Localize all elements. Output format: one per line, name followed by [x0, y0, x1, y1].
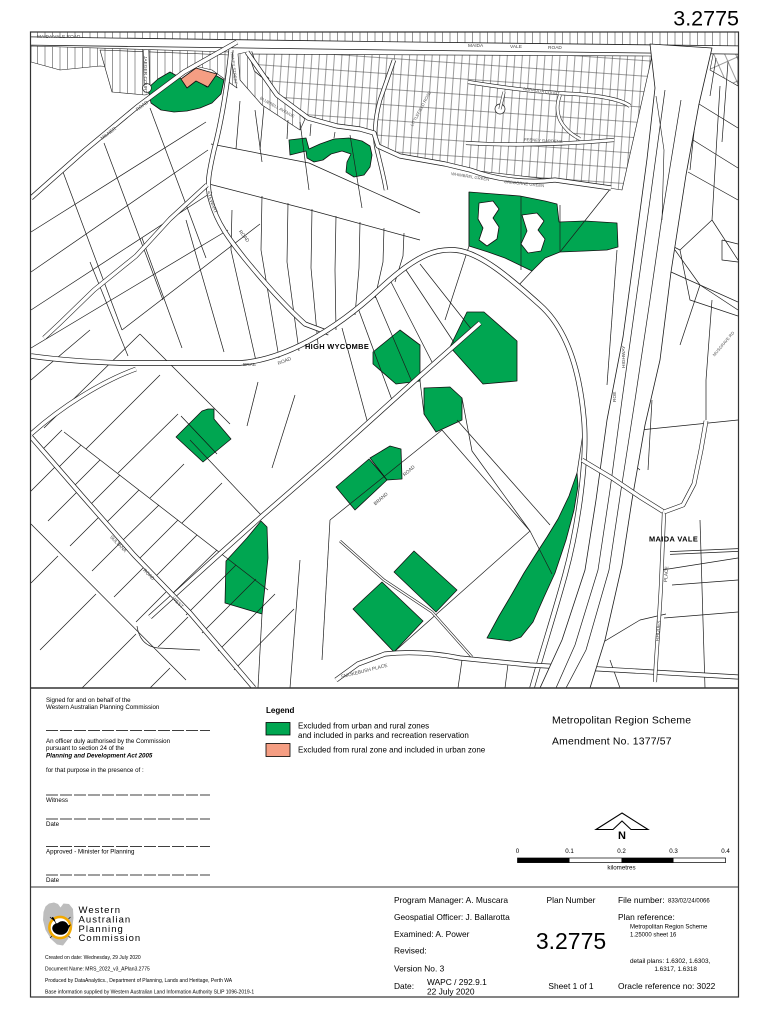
svg-text:Approved - Minister for Planni: Approved - Minister for Planning: [46, 849, 135, 856]
svg-text:Date: Date: [46, 821, 60, 828]
svg-text:WAPC / 292.9.1: WAPC / 292.9.1: [427, 977, 487, 987]
svg-text:HIGH WYCOMBE: HIGH WYCOMBE: [305, 342, 369, 351]
svg-text:for that purpose in the presen: for that purpose in the presence of :: [46, 767, 144, 774]
svg-text:ROAD: ROAD: [548, 45, 562, 51]
svg-text:Commission: Commission: [79, 933, 142, 944]
svg-text:MAIDA VALE ROAD: MAIDA VALE ROAD: [37, 34, 81, 40]
svg-text:22 July 2020: 22 July 2020: [427, 987, 475, 997]
svg-text:Legend: Legend: [266, 706, 295, 715]
svg-text:MAIDA: MAIDA: [468, 43, 484, 49]
svg-text:Planning and Development Act 2: Planning and Development Act 2005: [46, 753, 153, 760]
svg-text:pursuant to section 24 of the: pursuant to section 24 of the: [46, 745, 125, 752]
svg-text:Metropolitan Region Scheme: Metropolitan Region Scheme: [552, 716, 691, 727]
svg-text:Amendment No. 1377/57: Amendment No. 1377/57: [552, 737, 672, 748]
svg-text:and included in parks and recr: and included in parks and recreation res…: [298, 731, 469, 740]
svg-text:Revised:: Revised:: [394, 946, 427, 956]
svg-text:Base information supplied by W: Base information supplied by Western Aus…: [45, 990, 254, 996]
svg-text:JAEGER COURT: JAEGER COURT: [142, 56, 148, 94]
svg-text:0.1: 0.1: [565, 848, 574, 855]
svg-text:Plan reference:: Plan reference:: [618, 912, 675, 922]
svg-text:3.2775: 3.2775: [536, 928, 606, 954]
svg-text:Signed for and on behalf of th: Signed for and on behalf of the: [46, 697, 131, 704]
svg-text:Oracle reference no: 3022: Oracle reference no: 3022: [618, 981, 716, 991]
svg-text:Examined: A. Power: Examined: A. Power: [394, 929, 470, 939]
svg-text:Excluded from urban and rural: Excluded from urban and rural zones: [298, 722, 429, 731]
svg-text:Date:: Date:: [394, 981, 414, 991]
svg-text:Version No. 3: Version No. 3: [394, 964, 445, 974]
svg-text:Date: Date: [46, 877, 60, 884]
svg-text:833/02/24/0066: 833/02/24/0066: [668, 899, 710, 905]
svg-text:Created on date: Wednesday, 29: Created on date: Wednesday, 29 July 2020: [45, 955, 141, 961]
svg-text:detail plans: 1.6302, 1.6303,: detail plans: 1.6302, 1.6303,: [630, 958, 711, 965]
svg-text:Produced by DataAnalytics., De: Produced by DataAnalytics., Department o…: [45, 978, 233, 984]
svg-text:An officer duly authorised by: An officer duly authorised by the Commis…: [46, 738, 171, 745]
svg-text:Program Manager: A. Muscara: Program Manager: A. Muscara: [394, 895, 508, 905]
svg-text:Sheet 1 of 1: Sheet 1 of 1: [548, 981, 594, 991]
svg-text:0.2: 0.2: [617, 848, 626, 855]
svg-text:0.4: 0.4: [721, 848, 730, 855]
svg-text:Witness: Witness: [46, 797, 68, 804]
svg-text:HIGHWAY: HIGHWAY: [621, 345, 627, 368]
svg-text:kilometres: kilometres: [607, 865, 635, 872]
svg-text:MAIDA VALE: MAIDA VALE: [649, 535, 698, 544]
svg-text:Document Name: MRS_2022_v3_APl: Document Name: MRS_2022_v3_APlan3.2775: [45, 967, 150, 973]
svg-text:3.2775: 3.2775: [673, 7, 739, 31]
svg-text:File number:: File number:: [618, 895, 665, 905]
svg-text:Excluded from rural zone and i: Excluded from rural zone and included in…: [298, 746, 486, 755]
svg-text:1.25000 sheet 16: 1.25000 sheet 16: [630, 933, 677, 939]
svg-text:N: N: [618, 830, 626, 842]
svg-text:Western Australian Planning Co: Western Australian Planning Commission: [46, 704, 160, 711]
svg-text:Geospatial Officer: J. Ballaro: Geospatial Officer: J. Ballarotta: [394, 912, 510, 922]
svg-text:VALE: VALE: [510, 44, 522, 50]
svg-text:1.6317, 1.6318: 1.6317, 1.6318: [654, 966, 697, 973]
svg-text:ROE: ROE: [612, 392, 618, 402]
svg-text:Plan Number: Plan Number: [547, 895, 596, 905]
svg-text:0: 0: [516, 848, 520, 855]
svg-text:BRAE: BRAE: [243, 362, 256, 368]
svg-text:Metropolitan Region Scheme: Metropolitan Region Scheme: [630, 925, 708, 931]
svg-text:0.3: 0.3: [669, 848, 678, 855]
